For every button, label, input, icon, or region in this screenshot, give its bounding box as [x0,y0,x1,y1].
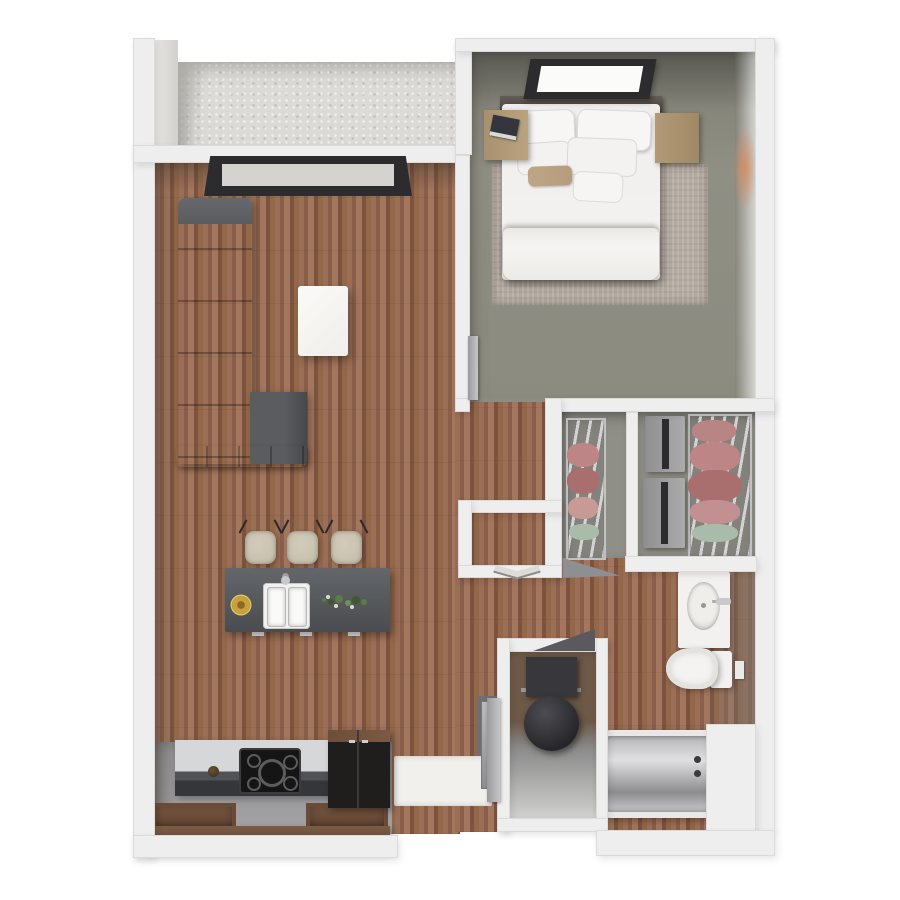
toilet-bowl [666,648,718,689]
dresser-slot [661,482,668,544]
sofa-armrest [178,198,252,224]
bed-accent-pillow [572,171,624,204]
island-garnish [322,598,326,602]
nightstand-right [655,113,699,163]
wall-balcony-bedroom-divider [455,40,472,155]
bar-stool-1 [245,531,276,564]
sink-basin-right [288,587,307,627]
island-sink [263,583,310,629]
water-heater [524,696,579,751]
bedroom-window [523,59,656,99]
burner-small [283,776,298,791]
clothes-pink [567,443,599,467]
bedroom-window-glass [537,66,644,92]
toilet-flush-plate [735,661,744,679]
sectional-sofa-vertical [178,198,252,464]
refrigerator-handle [362,740,368,743]
clothes-pink [688,470,742,502]
bar-stool-2 [287,531,318,564]
wall-utility-east [596,638,608,832]
burner-small [283,755,298,770]
wall-east [755,38,775,832]
refrigerator-door-seam [357,730,359,808]
closet-dresser-top [645,416,685,472]
clothes-pink [692,420,736,442]
floor-plan-canvas [0,0,900,900]
wall-closet-divider [626,412,638,558]
wall-hall-closet [545,398,562,578]
clothes-pink [568,497,598,519]
island-faucet [281,576,290,585]
balcony-floor [178,62,455,148]
vanity-sink-drain [701,603,706,608]
closet-dresser-bottom [643,478,685,548]
wall-closet-bathroom [625,556,757,572]
wall-west-inner-face [155,40,178,150]
burner-large [258,759,286,787]
refrigerator [328,730,390,808]
clothes-pink [690,500,740,524]
wall-north [455,38,775,52]
clothes-pink [690,442,740,472]
burner-small [247,754,261,768]
bed-duvet-fold [503,228,659,280]
clothes-pink [567,468,599,494]
sectional-sofa-front-cushions [176,446,307,467]
wall-utility-south [497,818,608,832]
wall-south-west [133,835,398,858]
bar-stool-3 [331,531,362,564]
bed-lumbar-pillow [528,165,573,187]
wall-tub-corner [706,724,756,832]
refrigerator-handle [349,740,355,743]
wall-coat-closet-north [458,500,562,513]
utility-top-unit [526,657,577,697]
island-plate [232,596,250,614]
wall-bedroom-south [545,398,775,412]
entry-door-mat [394,756,492,806]
cooktop [241,750,299,792]
vanity-faucet [716,598,731,605]
wall-bathroom-south [596,830,775,856]
bathtub [598,730,718,818]
living-room-window-glass [222,164,394,186]
burner-small [247,777,261,791]
clothes-green [692,524,738,542]
sink-basin-left [267,587,286,627]
refrigerator-wood-top [328,730,390,742]
bathtub-faucet [694,756,701,763]
entry-door-leaf [487,698,500,802]
dresser-slot [662,419,669,468]
clothes-green [569,524,599,540]
wall-bedroom-south-stub [455,398,470,412]
living-room-window [204,156,412,196]
coffee-table [298,286,348,356]
counter-canister [208,766,219,777]
bedroom-door-leaf [468,336,478,400]
